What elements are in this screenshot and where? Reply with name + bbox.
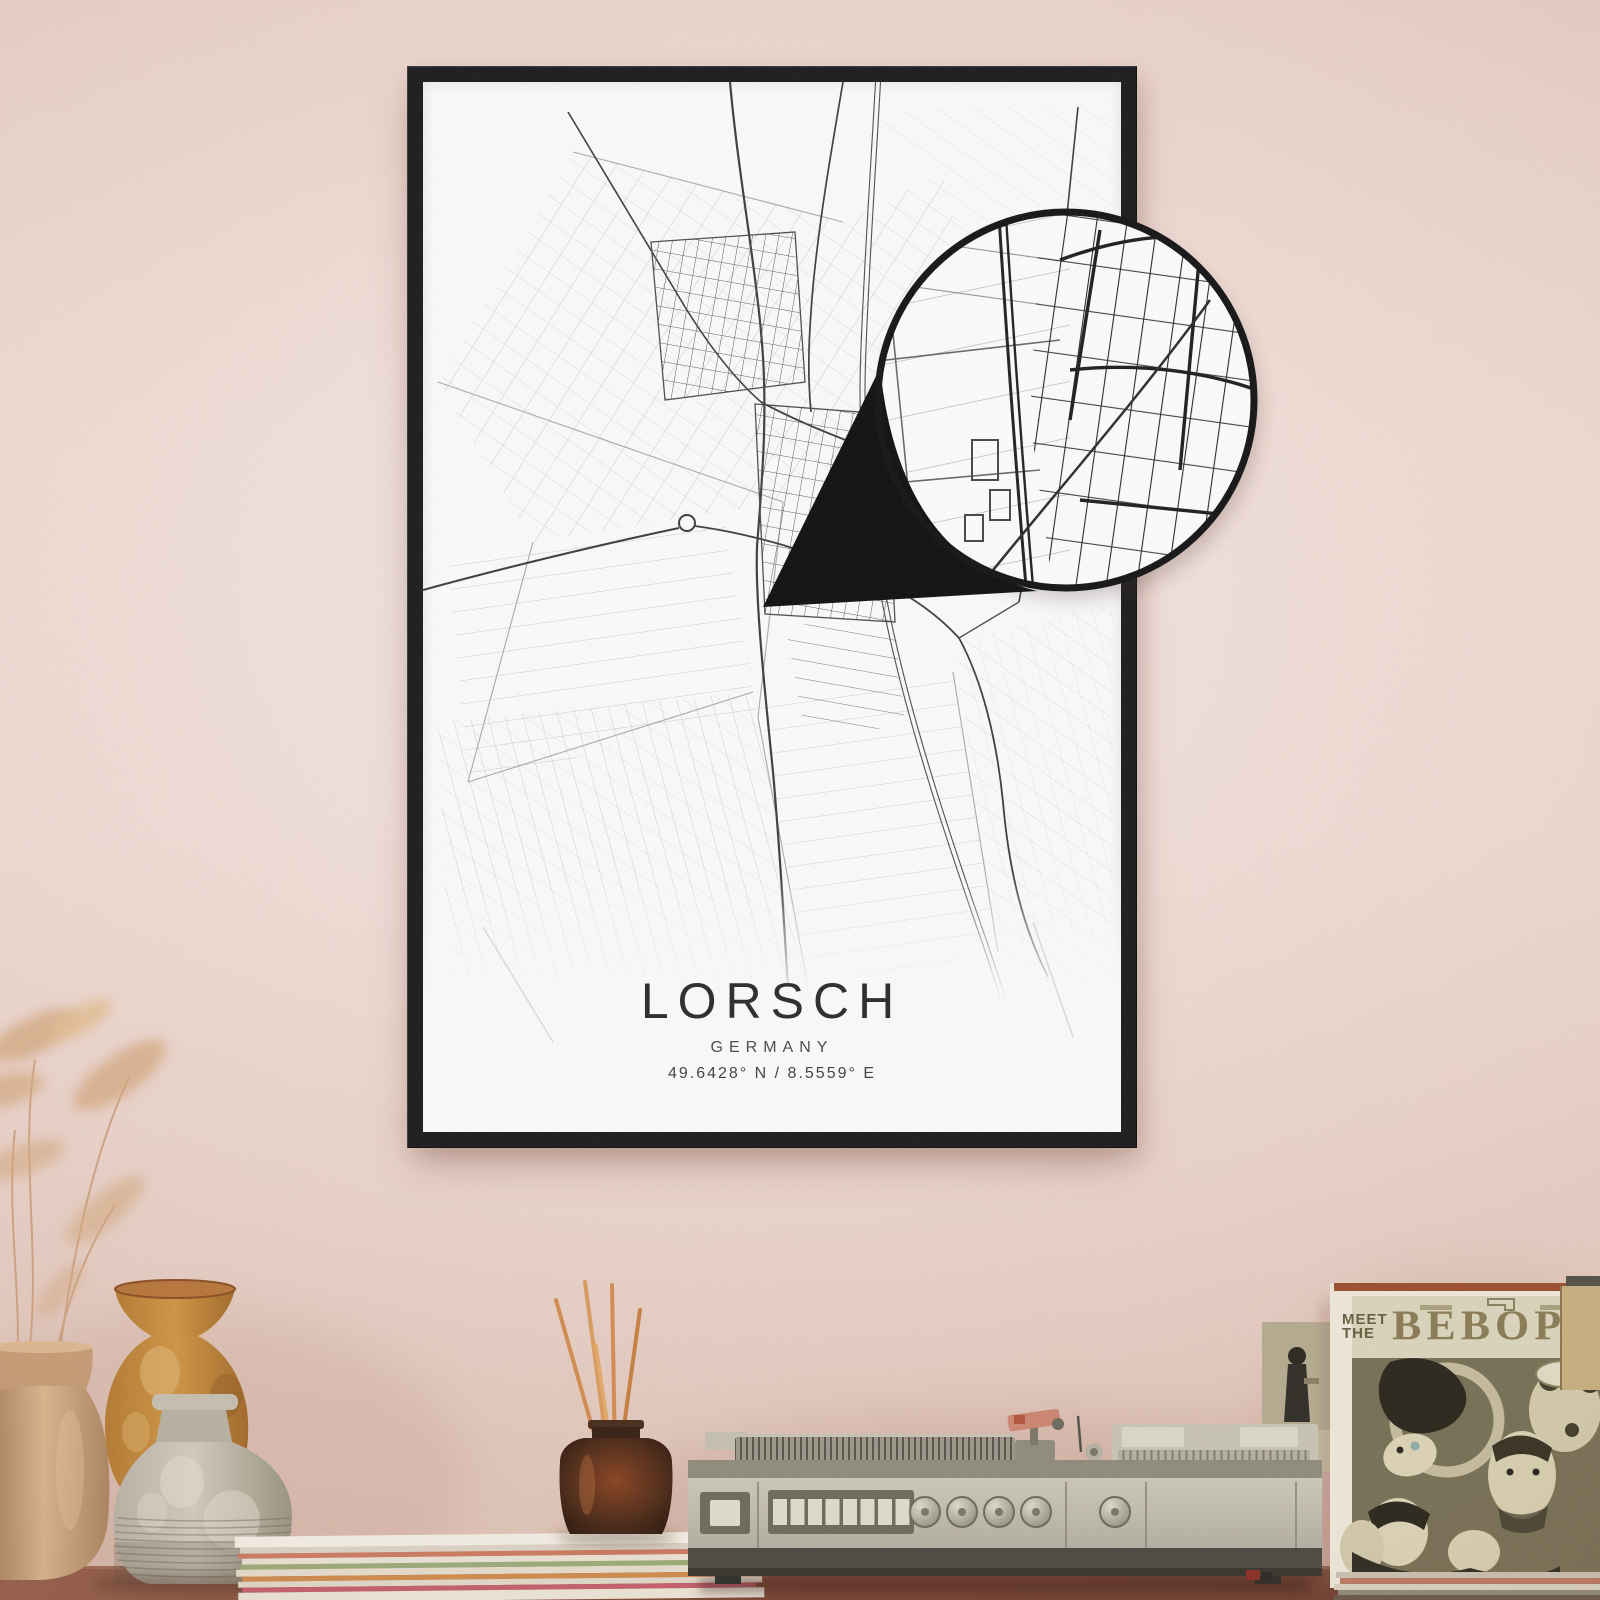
record-title-meet-the: MEET THE (1342, 1313, 1388, 1341)
record-title-line2: THE (1342, 1327, 1388, 1341)
room-scene: LORSCH GERMANY 49.6428° N / 8.5559° E (0, 0, 1600, 1600)
record-title-main: BEBOP (1392, 1305, 1566, 1347)
film-grain (0, 0, 1600, 1600)
tabletop-scene (0, 0, 1600, 1600)
